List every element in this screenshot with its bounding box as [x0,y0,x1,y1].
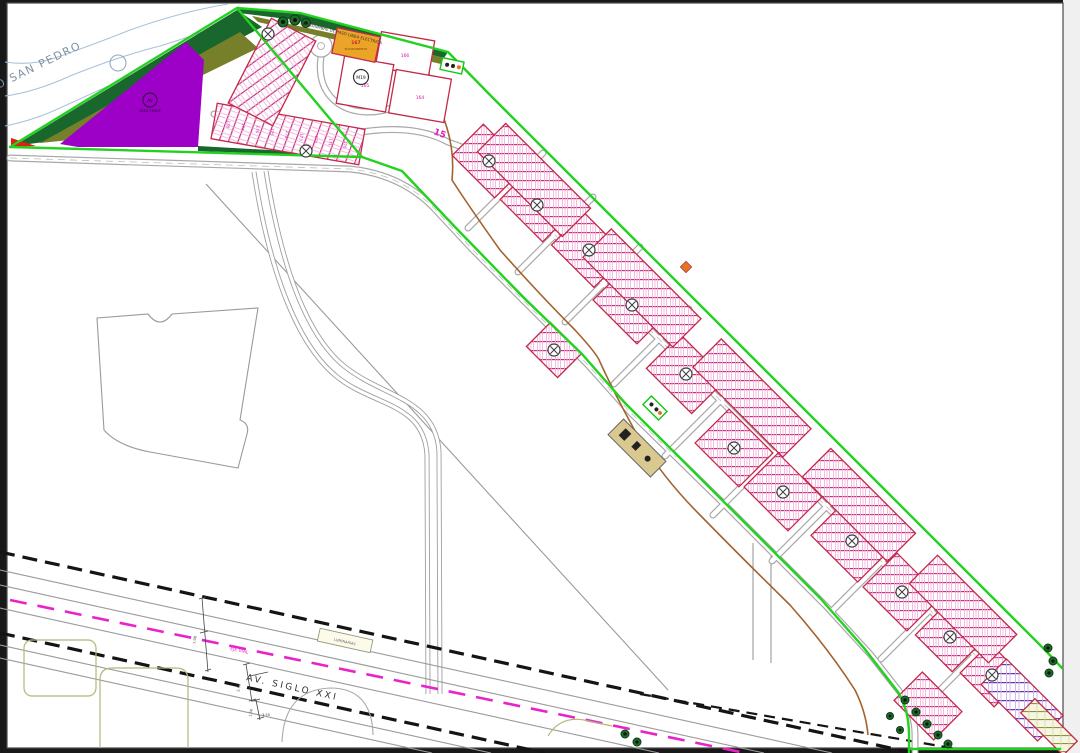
block-marker [777,486,789,498]
tree-icon [290,15,300,25]
block-marker [262,28,274,40]
parcel-number: 166 [401,53,410,59]
tree-center [946,742,949,745]
tree-center [914,710,917,713]
tree-center [925,722,928,725]
block-marker [986,669,998,681]
tree-icon [897,727,904,734]
block-marker [680,368,692,380]
block-marker [846,535,858,547]
block-marker [626,299,638,311]
tree-icon [621,730,629,738]
tree-center [281,20,285,24]
tree-center [889,715,892,718]
tree-center [903,698,906,701]
green-area-code: AV [147,98,154,104]
site-plan-drawing: RIO SAN PEDRO EJE VIAL AV. SIGLO XXI LUM… [0,0,1080,753]
tree-icon [1045,669,1053,677]
block-marker [531,199,543,211]
tree-icon [923,720,931,728]
tree-center [1047,671,1050,674]
tree-center [293,18,297,22]
parcel-number: 164 [416,95,425,101]
tree-icon [278,17,288,27]
block-marker [583,244,595,256]
tree-center [936,733,939,736]
block-marker [728,442,740,454]
tree-center [899,729,902,732]
block-marker [483,155,495,167]
block-id-label: M19 [356,75,366,81]
tree-icon [934,731,942,739]
tree-icon [633,738,641,746]
site-plan-viewport: RIO SAN PEDRO EJE VIAL AV. SIGLO XXI LUM… [0,0,1080,753]
tree-icon [901,696,909,704]
tree-icon [912,708,920,716]
equipment-caption: EQUIPAMIENTO [345,47,368,51]
block-marker [896,586,908,598]
tree-icon [1049,657,1057,665]
tree-icon [887,713,894,720]
equipment-number: 167 [351,40,360,46]
tree-center [623,732,626,735]
block-marker [548,344,560,356]
block-marker [300,145,312,157]
dimension-label: 3.50 [262,713,271,717]
tree-icon [944,740,952,748]
right-margin [1063,0,1080,753]
green-area-caption: AREA VERDE [139,109,161,113]
tree-center [1051,659,1054,662]
tree-center [635,740,638,743]
block-marker [944,631,956,643]
tree-center [1046,646,1049,649]
tree-icon [1044,644,1052,652]
